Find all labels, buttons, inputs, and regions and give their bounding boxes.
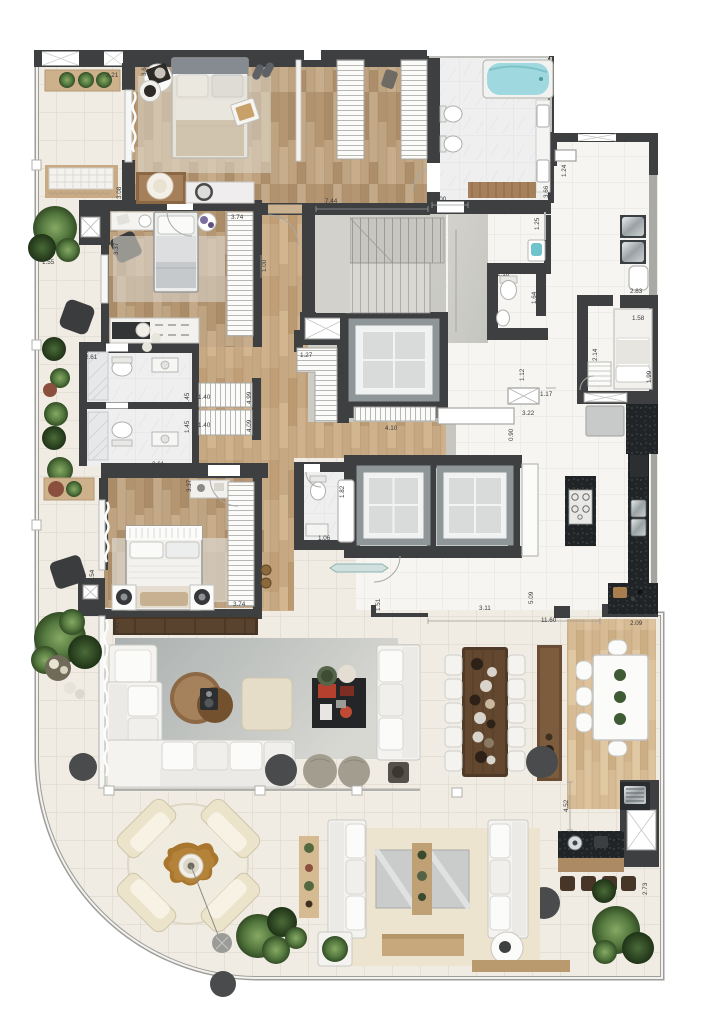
svg-text:2.73: 2.73 xyxy=(642,882,649,895)
svg-text:11.60: 11.60 xyxy=(541,617,557,624)
svg-text:3.74: 3.74 xyxy=(231,214,244,221)
svg-text:0.90: 0.90 xyxy=(508,428,515,441)
svg-text:3.00: 3.00 xyxy=(434,196,447,203)
svg-text:2.54: 2.54 xyxy=(89,569,96,582)
svg-text:1.00: 1.00 xyxy=(261,259,268,272)
svg-text:1.12: 1.12 xyxy=(519,368,526,381)
svg-text:1.17: 1.17 xyxy=(540,391,553,398)
svg-text:3.08: 3.08 xyxy=(116,186,123,199)
svg-text:2.61: 2.61 xyxy=(152,461,165,468)
svg-text:1.25: 1.25 xyxy=(534,217,541,230)
svg-text:1.27: 1.27 xyxy=(300,352,313,359)
svg-text:1.40: 1.40 xyxy=(198,422,211,429)
svg-text:3.11: 3.11 xyxy=(479,605,491,612)
svg-text:1.24: 1.24 xyxy=(561,164,568,177)
svg-text:3.74: 3.74 xyxy=(233,601,246,608)
svg-text:2.79: 2.79 xyxy=(339,362,346,375)
svg-text:1.06: 1.06 xyxy=(318,535,331,542)
svg-text:3.66: 3.66 xyxy=(543,185,550,198)
svg-text:1.55: 1.55 xyxy=(42,259,55,266)
svg-text:4.99: 4.99 xyxy=(246,391,253,404)
svg-text:1.40: 1.40 xyxy=(198,394,211,401)
svg-text:1.10: 1.10 xyxy=(497,271,510,278)
svg-text:5.09: 5.09 xyxy=(528,591,535,604)
svg-text:1.45: 1.45 xyxy=(184,392,191,405)
svg-text:1.58: 1.58 xyxy=(632,315,645,322)
svg-text:7.44: 7.44 xyxy=(325,198,338,205)
svg-text:4.09: 4.09 xyxy=(246,419,253,432)
svg-text:4.41: 4.41 xyxy=(114,621,121,634)
svg-text:1.82: 1.82 xyxy=(339,485,346,498)
svg-text:2.09: 2.09 xyxy=(630,620,643,627)
svg-text:1.64: 1.64 xyxy=(531,291,538,304)
svg-text:1.51: 1.51 xyxy=(375,598,382,611)
svg-text:3.37: 3.37 xyxy=(113,242,120,255)
svg-text:2.61: 2.61 xyxy=(85,354,98,361)
svg-text:3.37: 3.37 xyxy=(186,479,193,492)
svg-text:2.21: 2.21 xyxy=(106,72,119,79)
svg-text:1.99: 1.99 xyxy=(646,370,653,383)
svg-text:4.52: 4.52 xyxy=(563,799,570,812)
svg-text:1.45: 1.45 xyxy=(184,420,191,433)
svg-text:3.22: 3.22 xyxy=(522,410,535,417)
svg-text:3.67: 3.67 xyxy=(141,63,148,76)
svg-text:2.83: 2.83 xyxy=(630,288,643,295)
svg-text:4.10: 4.10 xyxy=(385,425,398,432)
svg-text:2.14: 2.14 xyxy=(592,348,599,361)
